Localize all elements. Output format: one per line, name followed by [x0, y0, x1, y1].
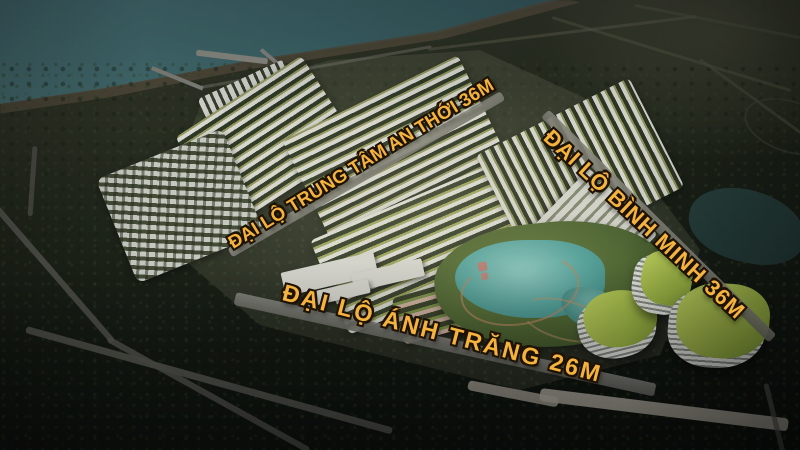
park-pavilion [477, 261, 488, 272]
aerial-render: ĐẠI LỘ TRUNG TÂM AN THỚI 36M ĐẠI LỘ BÌNH… [0, 0, 800, 450]
